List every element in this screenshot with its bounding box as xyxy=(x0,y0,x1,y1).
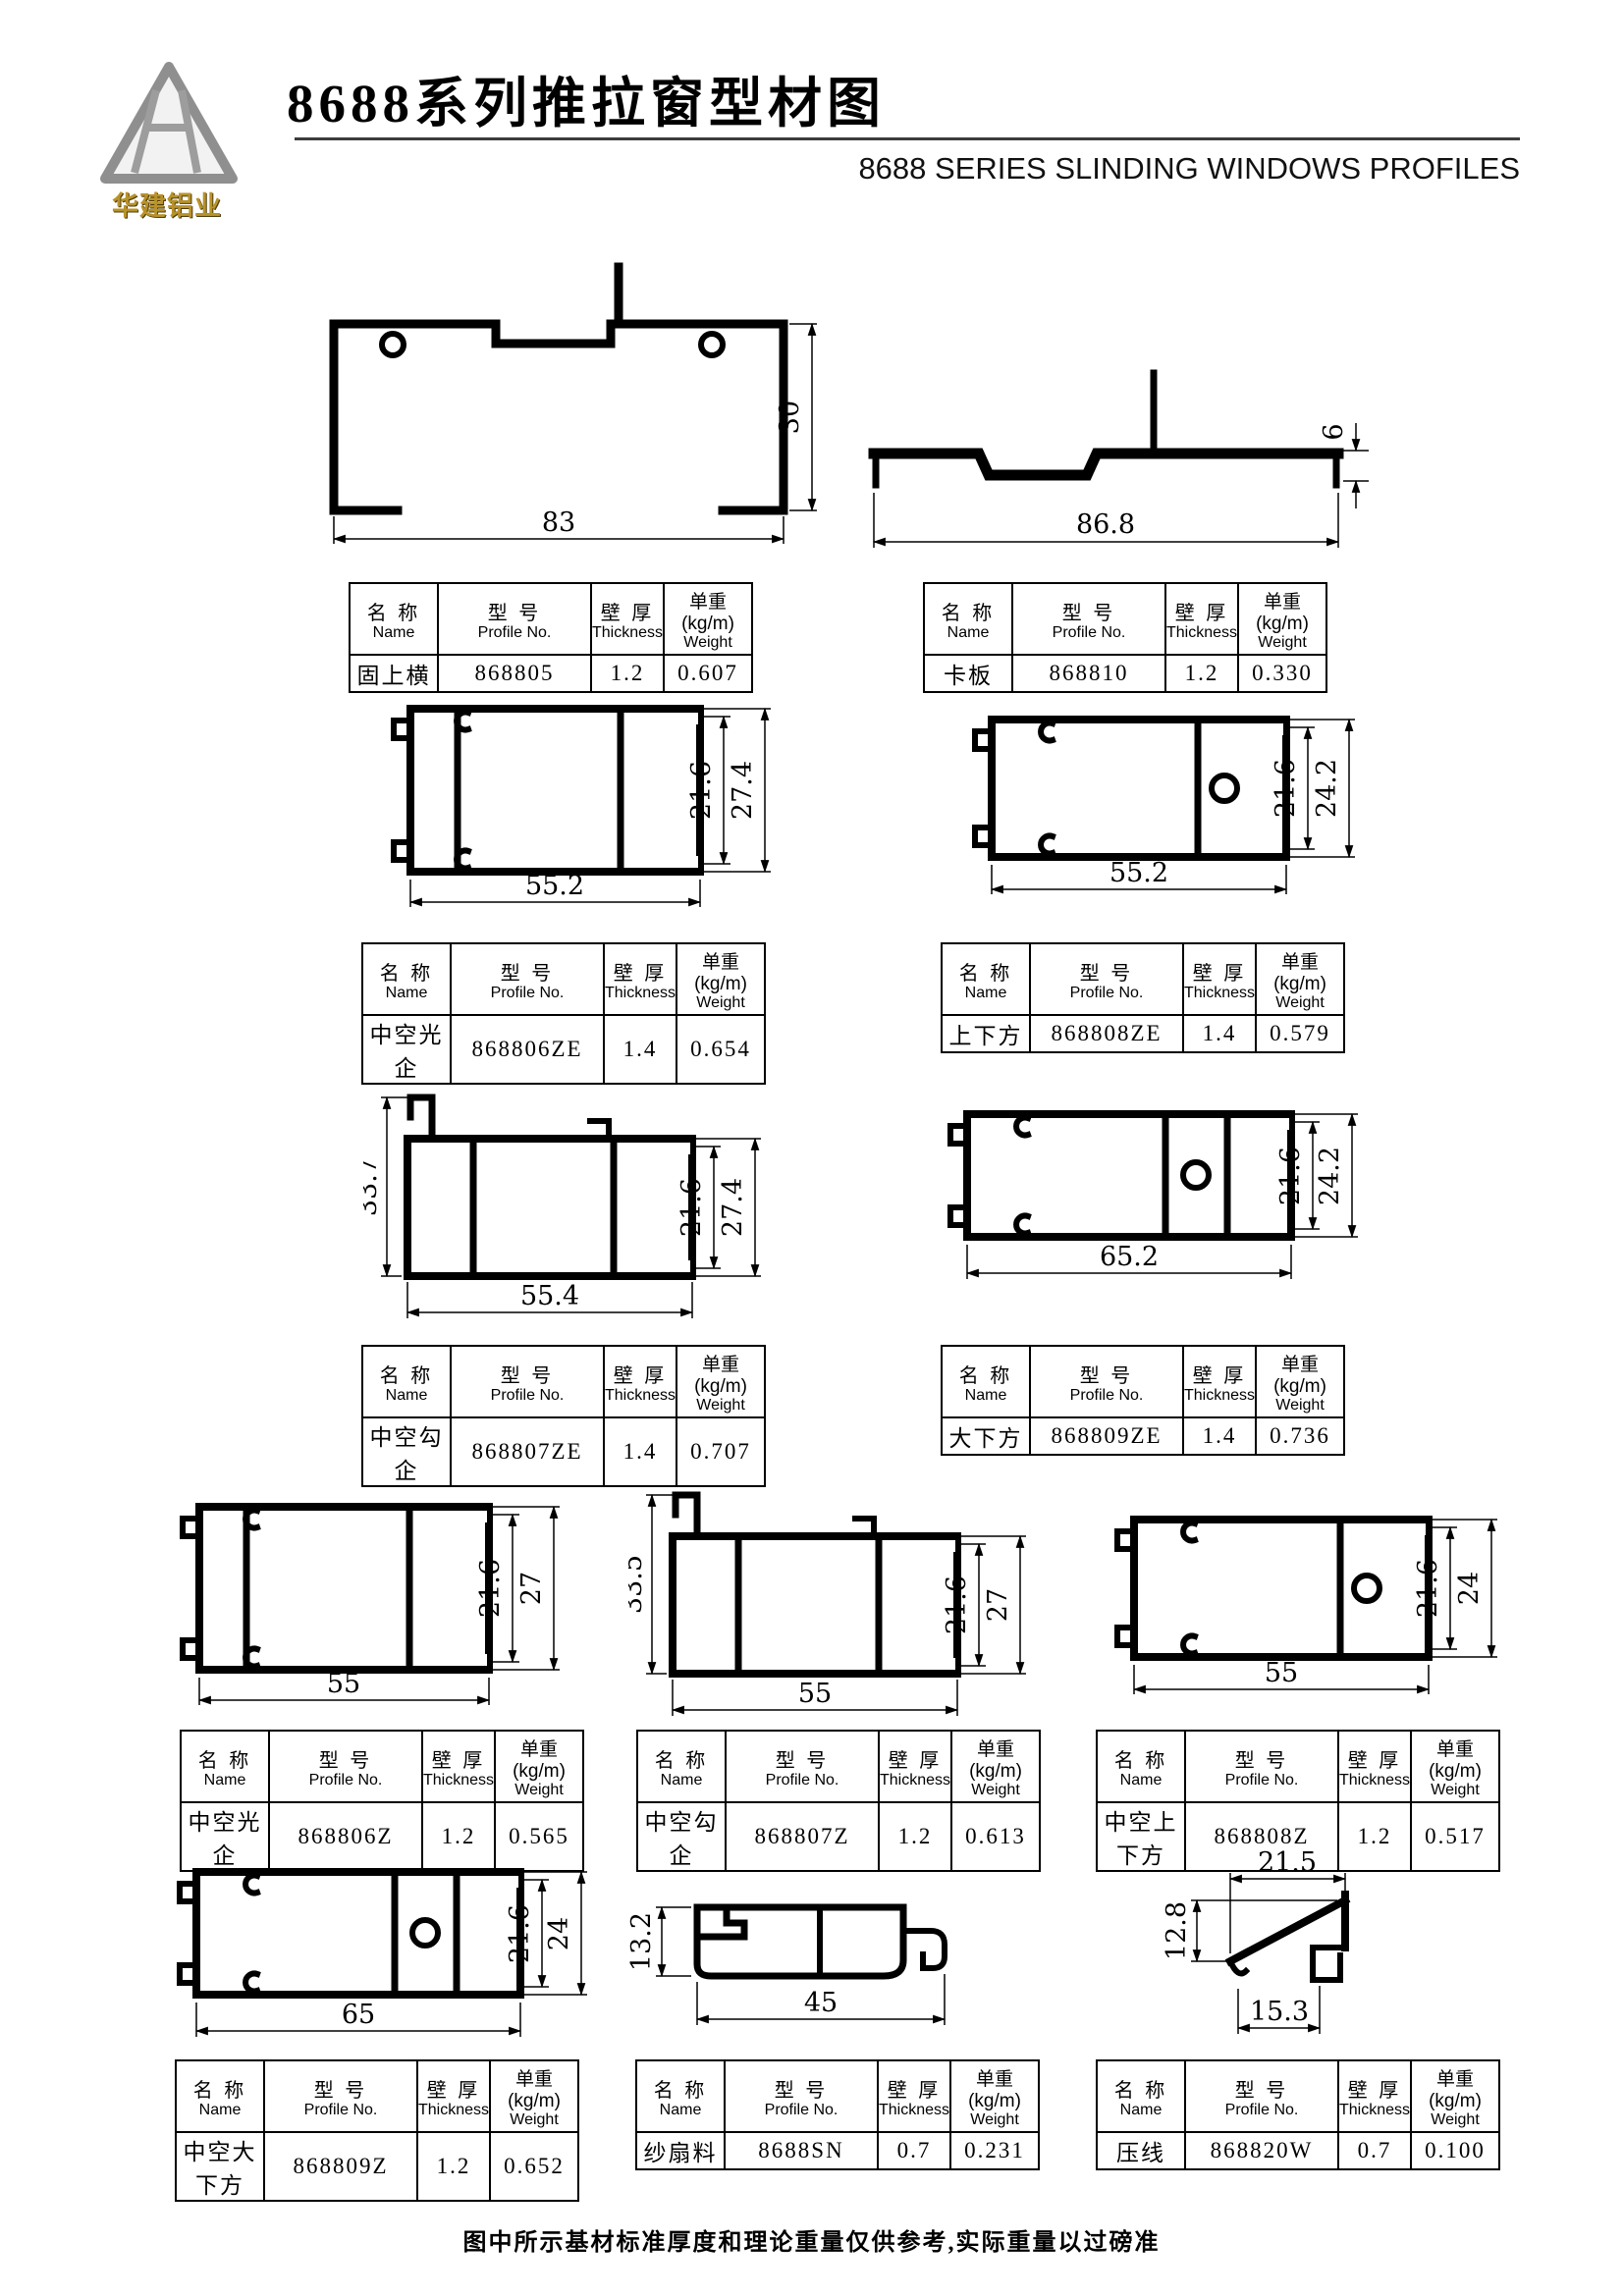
drawing-868809ZE: 65.2 21.6 24.2 xyxy=(933,1080,1365,1306)
drawing-868808Z: 55 21.6 24 xyxy=(1100,1492,1507,1703)
dim-width: 55 xyxy=(327,1669,360,1699)
dim-bottom: 15.3 xyxy=(1250,1997,1309,2027)
cell-thickness: 1.2 xyxy=(417,2132,490,2201)
header-weight: 单重(kg/m)Weight xyxy=(490,2060,578,2132)
drawing-868820W: 21.5 12.8 15.3 xyxy=(1144,1845,1448,2056)
cell-profile-no: 868807Z xyxy=(726,1802,879,1871)
dim-width: 55.4 xyxy=(520,1281,579,1311)
page-title: 8688系列推拉窗型材图 xyxy=(287,59,886,137)
header-name: 名 称Name xyxy=(362,1346,451,1417)
dim-outer: 24 xyxy=(1454,1572,1485,1605)
dimensions: 21.5 12.8 15.3 xyxy=(1162,1847,1345,2034)
drawing-868810: 86.8 6 xyxy=(830,344,1375,564)
dim-outer: 24.2 xyxy=(1315,1147,1345,1205)
dim-top: 21.5 xyxy=(1258,1847,1317,1878)
cell-profile-no: 868807ZE xyxy=(451,1417,604,1486)
header-profile-no: 型 号Profile No. xyxy=(725,2060,878,2132)
header-profile-no: 型 号Profile No. xyxy=(726,1731,879,1802)
header-thickness: 壁 厚Thickness xyxy=(1338,2060,1411,2132)
cell-name: 卡板 xyxy=(924,655,1012,692)
drawing-868806Z: 55 21.6 27 xyxy=(162,1477,574,1718)
header-profile-no: 型 号Profile No. xyxy=(451,943,604,1015)
dim-height: 6 xyxy=(1319,423,1349,440)
cell-profile-no: 868808ZE xyxy=(1030,1015,1183,1052)
spec-table-868805: 名 称Name 型 号Profile No. 壁 厚Thickness 单重(k… xyxy=(349,582,753,693)
dim-width: 55 xyxy=(1265,1658,1298,1688)
header-weight: 单重(kg/m)Weight xyxy=(676,943,765,1015)
cell-name: 上下方 xyxy=(942,1015,1030,1052)
header-thickness: 壁 厚Thickness xyxy=(591,583,664,655)
profile-outline xyxy=(975,720,1286,857)
page: 华建铝业 8688系列推拉窗型材图 8688 SERIES SLINDING W… xyxy=(0,0,1623,2296)
header-thickness: 壁 厚Thickness xyxy=(417,2060,490,2132)
dim-left: 33.7 xyxy=(363,1157,383,1216)
header-weight: 单重(kg/m)Weight xyxy=(1238,583,1326,655)
header-name: 名 称Name xyxy=(176,2060,264,2132)
dim-left: 13.2 xyxy=(626,1912,657,1971)
profile-outline xyxy=(407,1097,692,1276)
header-name: 名 称Name xyxy=(942,943,1030,1015)
header-profile-no: 型 号Profile No. xyxy=(1012,583,1165,655)
header-weight: 单重(kg/m)Weight xyxy=(1411,1731,1499,1802)
page-subtitle: 8688 SERIES SLINDING WINDOWS PROFILES xyxy=(295,151,1520,187)
dimensions: 33.7 55.4 21.6 27.4 xyxy=(363,1097,761,1318)
cell-weight: 0.231 xyxy=(950,2132,1039,2169)
header-name: 名 称Name xyxy=(1097,1731,1185,1802)
cell-thickness: 1.2 xyxy=(879,1802,951,1871)
dim-inner: 21.6 xyxy=(505,1904,535,1963)
cell-profile-no: 868810 xyxy=(1012,655,1165,692)
header-thickness: 壁 厚Thickness xyxy=(878,2060,950,2132)
dim-outer: 27 xyxy=(983,1588,1013,1622)
cell-profile-no: 868820W xyxy=(1185,2132,1338,2169)
company-name: 华建铝业 xyxy=(84,185,249,223)
header-thickness: 壁 厚Thickness xyxy=(604,943,676,1015)
dim-inner: 21.6 xyxy=(686,761,717,820)
cell-profile-no: 868809Z xyxy=(264,2132,417,2201)
dim-outer: 24.2 xyxy=(1312,759,1342,818)
cell-weight: 0.613 xyxy=(951,1802,1040,1871)
header-profile-no: 型 号Profile No. xyxy=(1185,1731,1338,1802)
header-thickness: 壁 厚Thickness xyxy=(422,1731,495,1802)
spec-table-868809ZE: 名 称Name 型 号Profile No. 壁 厚Thickness 单重(k… xyxy=(941,1345,1345,1456)
drawing-868806ZE: 55.2 21.6 27.4 xyxy=(373,679,785,920)
header-thickness: 壁 厚Thickness xyxy=(1338,1731,1411,1802)
cell-thickness: 1.4 xyxy=(1183,1417,1256,1455)
header-weight: 单重(kg/m)Weight xyxy=(951,1731,1040,1802)
drawing-8688SN: 13.2 45 xyxy=(619,1880,1031,2047)
dim-left: 12.8 xyxy=(1162,1901,1192,1960)
header-thickness: 壁 厚Thickness xyxy=(1183,943,1256,1015)
profile-outline xyxy=(180,1872,520,1995)
header-profile-no: 型 号Profile No. xyxy=(264,2060,417,2132)
dimensions: 86.8 6 xyxy=(874,423,1369,548)
profile-outline xyxy=(183,1507,489,1670)
header-weight: 单重(kg/m)Weight xyxy=(1256,1346,1344,1417)
header-weight: 单重(kg/m)Weight xyxy=(664,583,752,655)
header-profile-no: 型 号Profile No. xyxy=(1185,2060,1338,2132)
header-weight: 单重(kg/m)Weight xyxy=(1411,2060,1499,2132)
profile-outline xyxy=(673,1495,957,1674)
dim-left: 33.5 xyxy=(628,1555,648,1614)
header-name: 名 称Name xyxy=(636,2060,725,2132)
dimensions: 33.5 55 21.6 27 xyxy=(628,1495,1026,1716)
cell-name: 中空大下方 xyxy=(176,2132,264,2201)
cell-name: 中空勾企 xyxy=(637,1802,726,1871)
header-divider xyxy=(295,137,1520,140)
cell-weight: 0.736 xyxy=(1256,1417,1344,1455)
cell-name: 压线 xyxy=(1097,2132,1185,2169)
header-weight: 单重(kg/m)Weight xyxy=(1256,943,1344,1015)
header-name: 名 称Name xyxy=(637,1731,726,1802)
cell-weight: 0.100 xyxy=(1411,2132,1499,2169)
cell-thickness: 0.7 xyxy=(1338,2132,1411,2169)
profile-outline xyxy=(874,373,1338,485)
dim-width: 86.8 xyxy=(1076,509,1135,540)
header-profile-no: 型 号Profile No. xyxy=(1030,943,1183,1015)
dim-inner: 21.6 xyxy=(1275,1147,1306,1205)
header-name: 名 称Name xyxy=(1097,2060,1185,2132)
dim-width: 55.2 xyxy=(1109,858,1168,888)
dimensions: 55.2 21.6 27.4 xyxy=(410,709,771,907)
header-name: 名 称Name xyxy=(942,1346,1030,1417)
cell-profile-no: 8688SN xyxy=(725,2132,878,2169)
cell-name: 中空勾企 xyxy=(362,1417,451,1486)
dim-outer: 27.4 xyxy=(718,1178,748,1237)
header-weight: 单重(kg/m)Weight xyxy=(495,1731,583,1802)
dimensions: 55.2 21.6 24.2 xyxy=(992,720,1355,894)
cell-name: 大下方 xyxy=(942,1417,1030,1455)
header-name: 名 称Name xyxy=(350,583,438,655)
cell-thickness: 1.2 xyxy=(1165,655,1238,692)
drawing-868805: 83 30 xyxy=(295,253,825,553)
profile-outline xyxy=(1230,1895,1345,1980)
header-thickness: 壁 厚Thickness xyxy=(604,1346,676,1417)
cell-weight: 0.579 xyxy=(1256,1015,1344,1052)
profile-outline xyxy=(394,709,700,872)
footer-note: 图中所示基材标准厚度和理论重量仅供参考,实际重量以过磅准 xyxy=(0,2222,1623,2257)
dimensions: 55 21.6 27 xyxy=(199,1507,560,1705)
drawing-868807ZE: 33.7 55.4 21.6 27.4 xyxy=(363,1065,785,1330)
header-name: 名 称Name xyxy=(181,1731,269,1802)
dim-inner: 21.6 xyxy=(475,1559,506,1618)
dim-outer: 27 xyxy=(516,1572,547,1605)
dim-width: 65 xyxy=(342,2000,375,2030)
profile-outline xyxy=(1117,1520,1429,1657)
profile-outline xyxy=(334,267,784,510)
dim-height: 30 xyxy=(775,400,805,434)
spec-table-868808ZE: 名 称Name 型 号Profile No. 壁 厚Thickness 单重(k… xyxy=(941,942,1345,1053)
header-name: 名 称Name xyxy=(362,943,451,1015)
cell-thickness: 0.7 xyxy=(878,2132,950,2169)
cell-thickness: 1.4 xyxy=(1183,1015,1256,1052)
dimensions: 13.2 45 xyxy=(626,1907,945,2025)
header-weight: 单重(kg/m)Weight xyxy=(950,2060,1039,2132)
cell-weight: 0.330 xyxy=(1238,655,1326,692)
header-profile-no: 型 号Profile No. xyxy=(451,1346,604,1417)
cell-name: 纱扇料 xyxy=(636,2132,725,2169)
profile-outline xyxy=(950,1114,1291,1237)
spec-table-868810: 名 称Name 型 号Profile No. 壁 厚Thickness 单重(k… xyxy=(923,582,1327,693)
dim-width: 65.2 xyxy=(1100,1242,1159,1272)
header-thickness: 壁 厚Thickness xyxy=(1165,583,1238,655)
cell-weight: 0.652 xyxy=(490,2132,578,2201)
header-profile-no: 型 号Profile No. xyxy=(269,1731,422,1802)
header-name: 名 称Name xyxy=(924,583,1012,655)
header-thickness: 壁 厚Thickness xyxy=(1183,1346,1256,1417)
dim-inner: 21.6 xyxy=(676,1178,707,1237)
company-logo xyxy=(95,57,243,187)
dim-width: 83 xyxy=(542,507,575,538)
header-profile-no: 型 号Profile No. xyxy=(1030,1346,1183,1417)
dim-outer: 24 xyxy=(544,1917,574,1950)
spec-table-868807Z: 名 称Name 型 号Profile No. 壁 厚Thickness 单重(k… xyxy=(636,1730,1041,1872)
dim-width: 55.2 xyxy=(525,871,584,901)
dimensions: 55 21.6 24 xyxy=(1134,1520,1497,1694)
dim-inner: 21.6 xyxy=(1413,1559,1443,1618)
dim-inner: 21.6 xyxy=(1271,759,1301,818)
dim-width: 45 xyxy=(804,1988,838,2018)
spec-table-868809Z: 名 称Name 型 号Profile No. 壁 厚Thickness 单重(k… xyxy=(175,2059,579,2202)
dim-inner: 21.6 xyxy=(942,1575,972,1634)
header-thickness: 壁 厚Thickness xyxy=(879,1731,951,1802)
cell-profile-no: 868809ZE xyxy=(1030,1417,1183,1455)
header-profile-no: 型 号Profile No. xyxy=(438,583,591,655)
profile-outline xyxy=(697,1907,945,1976)
header-weight: 单重(kg/m)Weight xyxy=(676,1346,765,1417)
spec-table-868820W: 名 称Name 型 号Profile No. 壁 厚Thickness 单重(k… xyxy=(1096,2059,1500,2170)
drawing-868809Z: 65 21.6 24 xyxy=(162,1838,594,2063)
drawing-868808ZE: 55.2 21.6 24.2 xyxy=(957,692,1365,903)
dim-outer: 27.4 xyxy=(728,761,758,820)
spec-table-8688SN: 名 称Name 型 号Profile No. 壁 厚Thickness 单重(k… xyxy=(635,2059,1040,2170)
dim-width: 55 xyxy=(798,1679,832,1709)
spec-table-868806ZE: 名 称Name 型 号Profile No. 壁 厚Thickness 单重(k… xyxy=(361,942,766,1085)
drawing-868807Z: 33.5 55 21.6 27 xyxy=(628,1463,1051,1728)
